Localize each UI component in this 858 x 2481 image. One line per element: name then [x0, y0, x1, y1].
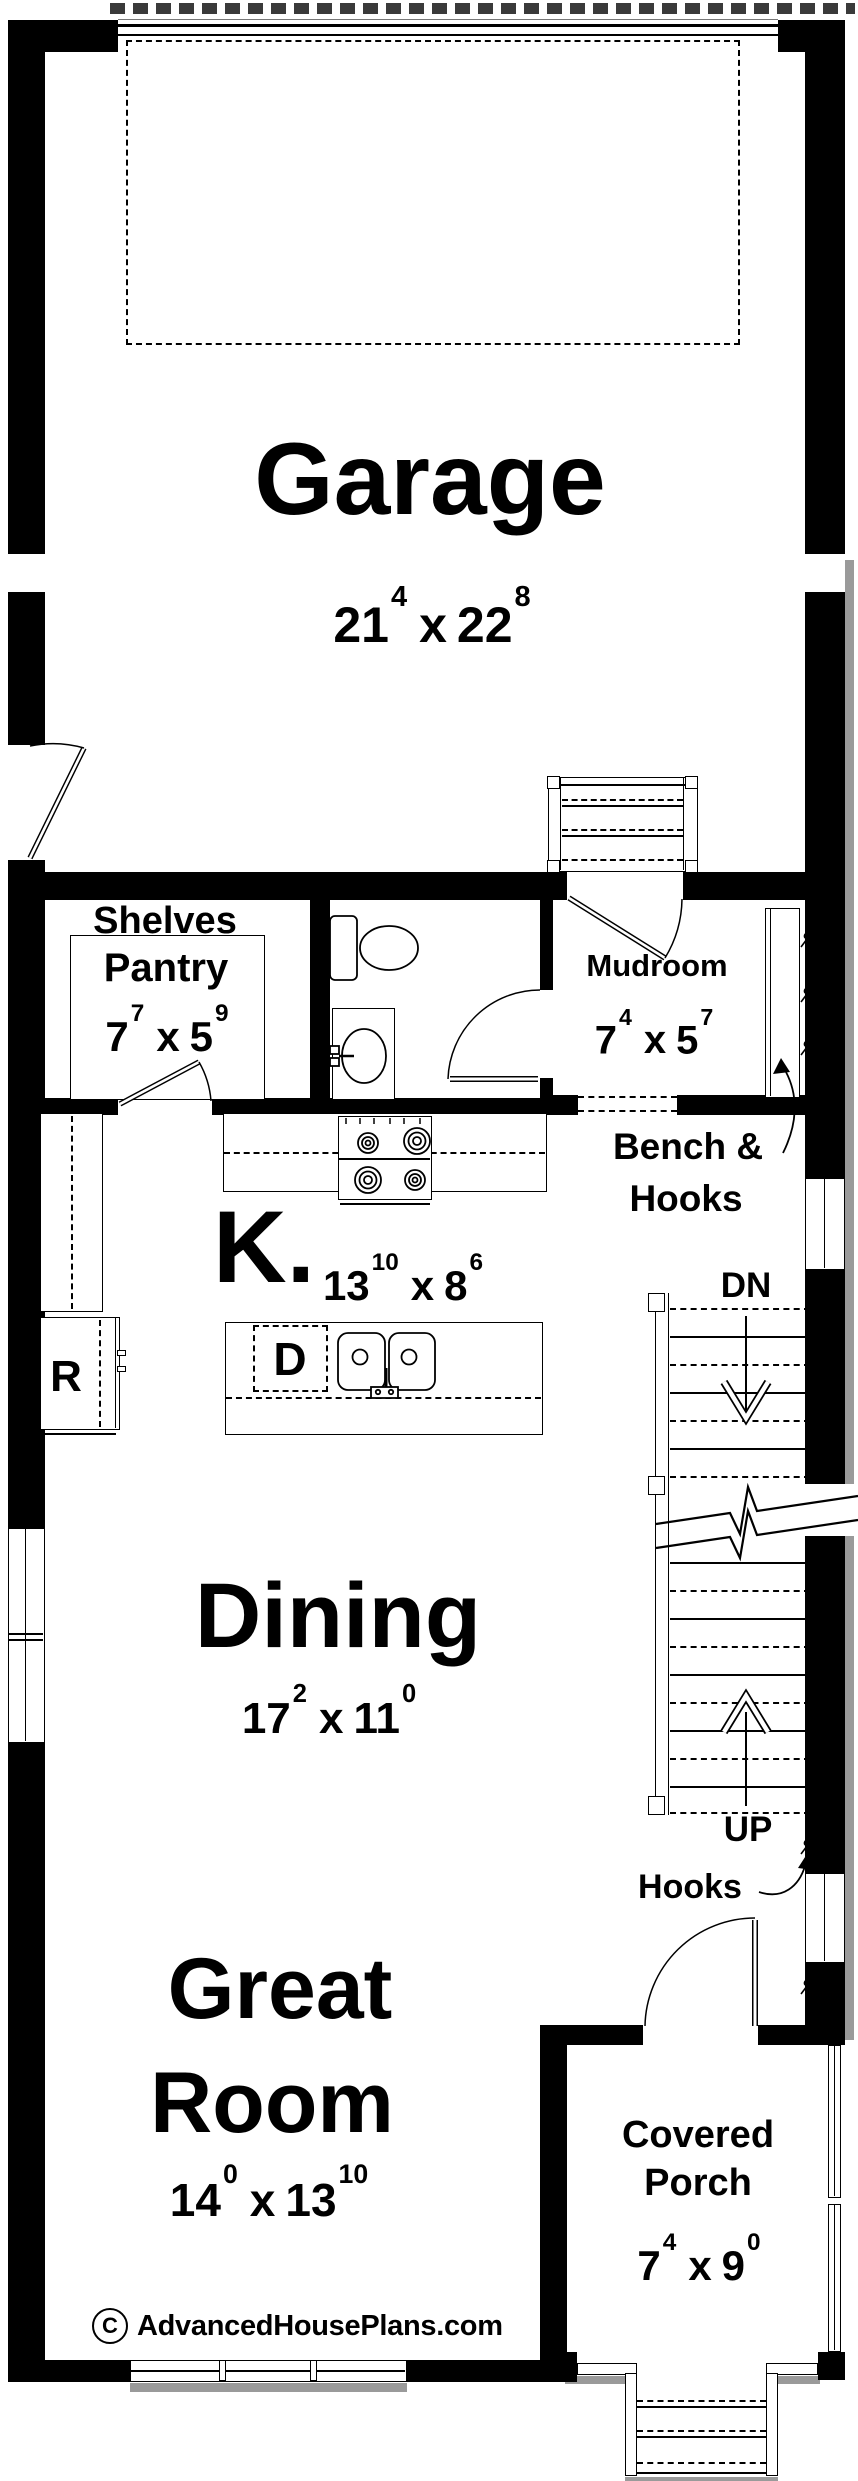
porch-label-line2: Porch: [644, 2164, 752, 2202]
plan-graphic: 0: [402, 1680, 416, 1708]
coat-hooks: [801, 933, 810, 1994]
bench-hooks-label-line1: Bench &: [613, 1128, 763, 1165]
plan-graphic: [804, 1840, 809, 1845]
plan-graphic: x: [411, 1262, 434, 1309]
plan-graphic: 10: [372, 1249, 399, 1276]
plan-graphic: 5: [190, 1013, 213, 1060]
greatroom-label-line1: Great: [168, 1946, 393, 2032]
plan-graphic: 7: [105, 1013, 128, 1060]
bench-hooks-label-line2: Hooks: [629, 1180, 742, 1217]
refrigerator-label: R: [50, 1355, 82, 1399]
plan-graphic: [801, 1846, 807, 1854]
plan-graphic: [783, 1072, 795, 1153]
plan-graphic: [330, 916, 357, 980]
plan-graphic: [645, 1918, 755, 2026]
garage-dimensions: 214x228: [333, 600, 532, 650]
plan-graphic: 6: [469, 1249, 483, 1276]
plan-graphic: [346, 1118, 420, 1124]
front-door: [645, 1918, 755, 2026]
plan-graphic: [402, 1350, 417, 1365]
plan-graphic: 9: [215, 1000, 229, 1027]
plan-graphic: [358, 1133, 378, 1153]
plan-graphic: 21: [333, 597, 389, 653]
plan-graphic: 0: [747, 2229, 761, 2256]
plan-graphic: 13: [323, 1262, 370, 1309]
hooks-label: Hooks: [638, 1870, 742, 1904]
plan-graphic: 13: [285, 2174, 336, 2226]
plan-graphic: [413, 1137, 421, 1145]
plan-graphic: [353, 1350, 368, 1365]
pantry-dimensions: 77x59: [105, 1016, 230, 1058]
plan-graphic: [798, 1854, 813, 1870]
floor-plan: Garage 214x228 Shelves Pantry 77x59 Mudr…: [0, 0, 858, 2481]
plan-graphic: 0: [223, 2159, 238, 2189]
plan-graphic: x: [319, 1694, 343, 1743]
plan-graphic: [759, 1866, 805, 1894]
plan-graphic: 5: [676, 1018, 698, 1062]
plan-graphic: [773, 1058, 790, 1074]
plan-graphic: [389, 1390, 393, 1394]
plan-graphic: [801, 1047, 807, 1055]
plan-graphic: [801, 994, 807, 1002]
greatroom-label-line2: Room: [150, 2060, 394, 2146]
greatroom-dimensions: 140x1310: [170, 2177, 370, 2223]
plan-graphic: 7: [595, 1018, 617, 1062]
plan-graphic: 9: [722, 2242, 745, 2289]
stair-cut-line: [656, 1487, 858, 1558]
plan-graphic: 17: [242, 1694, 291, 1743]
plan-graphic: [30, 748, 84, 858]
plan-linework: [0, 0, 858, 2481]
plan-graphic: 8: [515, 581, 531, 613]
plan-graphic: 11: [353, 1694, 400, 1743]
plan-graphic: [366, 1141, 371, 1146]
plan-graphic: x: [156, 1013, 179, 1060]
plan-graphic: [804, 1041, 809, 1046]
plan-graphic: 8: [444, 1262, 467, 1309]
plan-graphic: 4: [391, 581, 407, 613]
plan-graphic: x: [644, 1018, 666, 1062]
plan-graphic: [448, 990, 540, 1079]
plan-graphic: [801, 939, 807, 947]
plan-graphic: [30, 744, 84, 748]
plan-graphic: [405, 1170, 425, 1190]
plan-graphic: [376, 1390, 380, 1394]
plan-graphic: 22: [457, 597, 513, 653]
bathroom-door: [448, 990, 540, 1079]
plan-graphic: x: [419, 597, 447, 653]
plan-graphic: [364, 1176, 372, 1184]
dining-dimensions: 172x110: [242, 1697, 418, 1741]
bench-hooks-arrow: [773, 1058, 795, 1153]
plan-graphic: [199, 1062, 211, 1101]
plan-graphic: [656, 1487, 858, 1534]
plan-graphic: [120, 1062, 199, 1104]
porch-label-line1: Covered: [622, 2116, 774, 2154]
plan-graphic: x: [250, 2174, 276, 2226]
plan-graphic: 14: [170, 2174, 221, 2226]
kitchen-dimensions: 1310x86: [323, 1265, 485, 1307]
up-arrow: [724, 1696, 768, 1806]
plan-graphic: 2: [293, 1680, 307, 1708]
plan-graphic: 10: [339, 2159, 369, 2189]
plan-graphic: [330, 1046, 339, 1054]
pantry-label: Pantry: [104, 948, 229, 988]
plan-graphic: [360, 926, 418, 970]
plan-graphic: [804, 933, 809, 938]
plan-graphic: x: [688, 2242, 711, 2289]
stairs-dn-label: DN: [721, 1268, 772, 1303]
plan-graphic: 4: [619, 1004, 632, 1030]
plan-graphic: 7: [131, 1000, 145, 1027]
plan-graphic: [804, 988, 809, 993]
dining-label: Dining: [195, 1570, 481, 1662]
plan-graphic: [362, 1137, 374, 1149]
range-burners: [346, 1118, 430, 1193]
plan-graphic: 7: [637, 2242, 660, 2289]
plan-graphic: 7: [700, 1004, 713, 1030]
pantry-shelves-label: Shelves: [93, 902, 237, 940]
plan-graphic: [409, 1174, 421, 1186]
stairs-up-label: UP: [724, 1812, 773, 1847]
plan-graphic: [413, 1178, 418, 1183]
pantry-door: [120, 1062, 211, 1104]
island-sink: [338, 1333, 435, 1398]
bath-sink: [330, 1029, 386, 1083]
plan-graphic: [409, 1133, 426, 1150]
brand-logo: C AdvancedHousePlans.com: [92, 2308, 503, 2344]
mudroom-dimensions: 74x57: [595, 1020, 716, 1060]
plan-graphic: [360, 1172, 377, 1189]
plan-graphic: [804, 1980, 809, 1985]
kitchen-label: K.: [213, 1196, 315, 1298]
down-arrow: [724, 1316, 768, 1418]
dishwasher-label: D: [273, 1336, 306, 1382]
hooks-arrow: [759, 1854, 813, 1894]
toilet: [330, 916, 418, 980]
plan-graphic: [330, 1058, 339, 1066]
brand-site: AdvancedHousePlans.com: [137, 2310, 503, 2343]
garage-service-door: [30, 744, 84, 858]
garage-label: Garage: [254, 428, 606, 530]
porch-dimensions: 74x90: [637, 2245, 762, 2287]
plan-graphic: [801, 1986, 807, 1994]
copyright-icon: C: [92, 2308, 128, 2344]
mudroom-label: Mudroom: [586, 950, 727, 981]
plan-graphic: 4: [663, 2229, 677, 2256]
plan-graphic: [656, 1511, 858, 1558]
